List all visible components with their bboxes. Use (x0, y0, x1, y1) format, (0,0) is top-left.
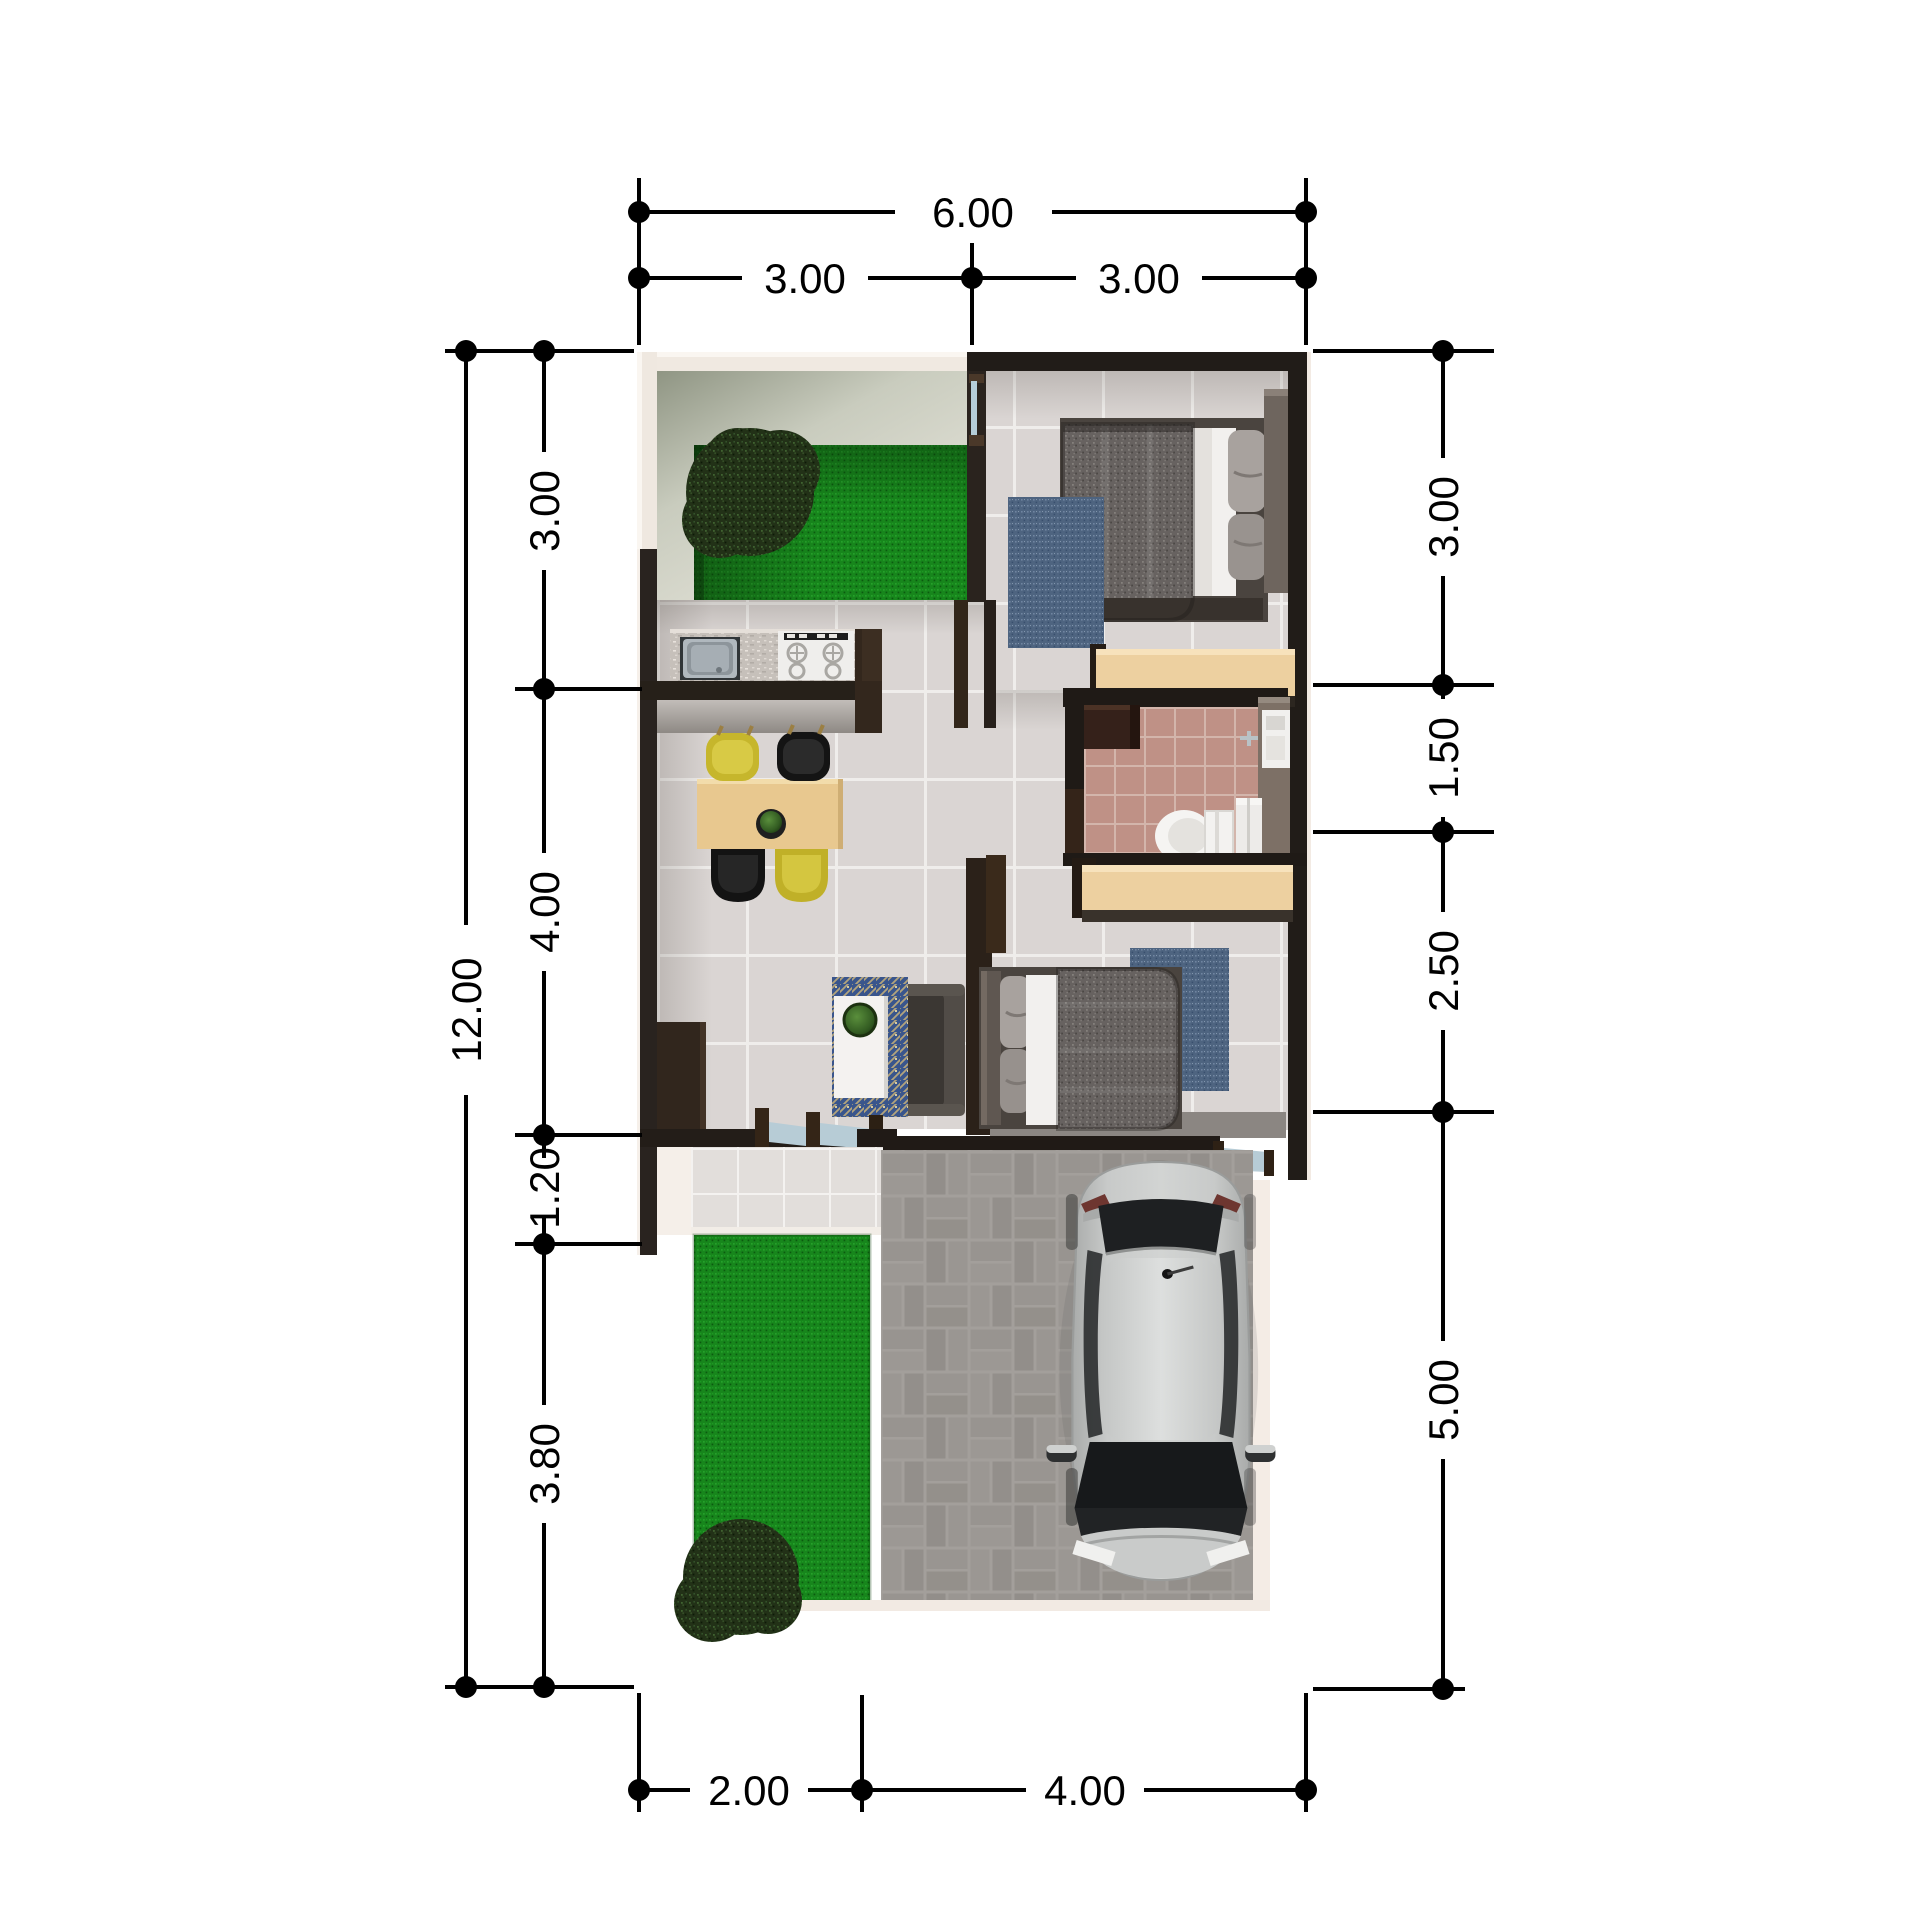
svg-text:3.00: 3.00 (764, 255, 846, 302)
svg-text:12.00: 12.00 (443, 957, 490, 1062)
svg-text:3.00: 3.00 (1098, 255, 1180, 302)
svg-text:3.00: 3.00 (1420, 476, 1467, 558)
svg-text:1.50: 1.50 (1420, 717, 1467, 799)
svg-text:3.00: 3.00 (521, 470, 568, 552)
svg-text:2.50: 2.50 (1420, 930, 1467, 1012)
svg-text:5.00: 5.00 (1420, 1359, 1467, 1441)
svg-text:4.00: 4.00 (1044, 1767, 1126, 1814)
svg-text:1.20: 1.20 (521, 1147, 568, 1229)
svg-text:2.00: 2.00 (708, 1767, 790, 1814)
svg-text:4.00: 4.00 (521, 871, 568, 953)
svg-text:3.80: 3.80 (521, 1423, 568, 1505)
svg-text:6.00: 6.00 (932, 189, 1014, 236)
